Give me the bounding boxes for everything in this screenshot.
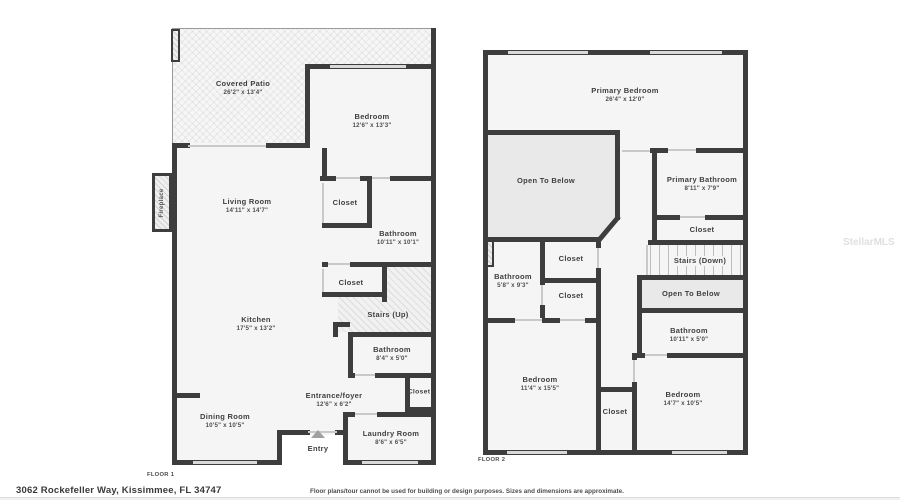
wall-segment (632, 382, 637, 450)
property-address: 3062 Rockefeller Way, Kissimmee, FL 3474… (16, 485, 222, 496)
room-dims: 10'11" x 5'0" (670, 336, 709, 344)
room-label-bathroom: Bathroom 5'8" x 9'3" (494, 272, 532, 290)
door-opening (541, 285, 543, 305)
wall-segment (637, 275, 748, 280)
room-dims: 8'11" x 7'9" (667, 185, 737, 193)
wall-segment (540, 242, 545, 285)
wall-segment (632, 353, 637, 360)
floor2-plan: Primary Bedroom 26'4" x 12'0" Open To Be… (0, 0, 900, 500)
room-label-stairs-down: Stairs (Down) (671, 256, 729, 266)
wall-segment (637, 353, 645, 358)
wall-segment (637, 275, 642, 358)
room-label-bedroom: Bedroom 11'4" x 15'5" (521, 375, 560, 393)
door-opening (668, 149, 696, 151)
wall-segment (657, 215, 680, 220)
room-name: Closet (559, 254, 584, 264)
door-opening (515, 319, 542, 321)
wall-segment (667, 353, 748, 358)
wall-segment (705, 215, 748, 220)
room-name: Closet (559, 291, 584, 301)
door-opening (622, 150, 650, 152)
room-name: Bedroom (521, 375, 560, 385)
room-dims: 11'4" x 15'5" (521, 385, 560, 393)
room-label-closet: Closet (603, 407, 628, 417)
wall-segment (542, 318, 560, 323)
wall-segment (540, 305, 545, 318)
room-name: Primary Bedroom (591, 86, 658, 96)
open-to-below-area (483, 130, 620, 242)
window (672, 451, 727, 454)
door-opening (597, 248, 599, 268)
room-dims: 26'4" x 12'0" (591, 96, 658, 104)
room-label-open-to-below: Open To Below (517, 176, 575, 186)
wall-segment (596, 268, 601, 450)
door-opening (646, 245, 648, 275)
wall-segment (696, 148, 748, 153)
room-name: Stairs (Down) (671, 256, 729, 266)
room-label-bedroom: Bedroom 14'7" x 10'5" (664, 390, 703, 408)
room-name: Bedroom (664, 390, 703, 400)
wall-segment (585, 318, 596, 323)
wall-segment (652, 148, 657, 245)
stellar-mls-watermark: StellarMLS (843, 237, 895, 248)
room-label-bathroom: Bathroom 10'11" x 5'0" (670, 326, 709, 344)
wall-segment (483, 318, 515, 323)
wall-segment (743, 50, 748, 455)
room-name: Bathroom (494, 272, 532, 282)
room-label-primary-bathroom: Primary Bathroom 8'11" x 7'9" (667, 175, 737, 193)
room-label-closet: Closet (690, 225, 715, 235)
floorplan-image: Fireplace Covered Patio 26'2" x 13'4" Be… (0, 0, 900, 500)
wall-segment (615, 130, 620, 220)
wall-segment (483, 130, 620, 135)
door-opening (560, 319, 585, 321)
room-dims: 14'7" x 10'5" (664, 400, 703, 408)
room-label-closet: Closet (559, 291, 584, 301)
room-dims: 5'8" x 9'3" (494, 282, 532, 290)
room-name: Open To Below (517, 176, 575, 186)
wall-segment (483, 50, 488, 455)
door-opening (633, 360, 635, 382)
room-name: Bathroom (670, 326, 709, 336)
floor2-caption: FLOOR 2 (478, 457, 505, 463)
disclaimer-text: Floor plans/tour cannot be used for buil… (310, 488, 624, 495)
room-name: Closet (690, 225, 715, 235)
window (650, 51, 722, 54)
wall-segment (545, 278, 596, 283)
wall-segment (648, 240, 748, 245)
room-name: Open To Below (662, 289, 720, 299)
room-label-closet: Closet (559, 254, 584, 264)
room-name: Closet (603, 407, 628, 417)
room-label-primary-bedroom: Primary Bedroom 26'4" x 12'0" (591, 86, 658, 104)
window (507, 451, 567, 454)
room-label-open-to-below: Open To Below (662, 289, 720, 299)
window (508, 51, 588, 54)
room-name: Primary Bathroom (667, 175, 737, 185)
wall-segment (597, 387, 637, 392)
wall-segment (637, 308, 748, 313)
door-opening (645, 354, 667, 356)
door-opening (680, 216, 705, 218)
